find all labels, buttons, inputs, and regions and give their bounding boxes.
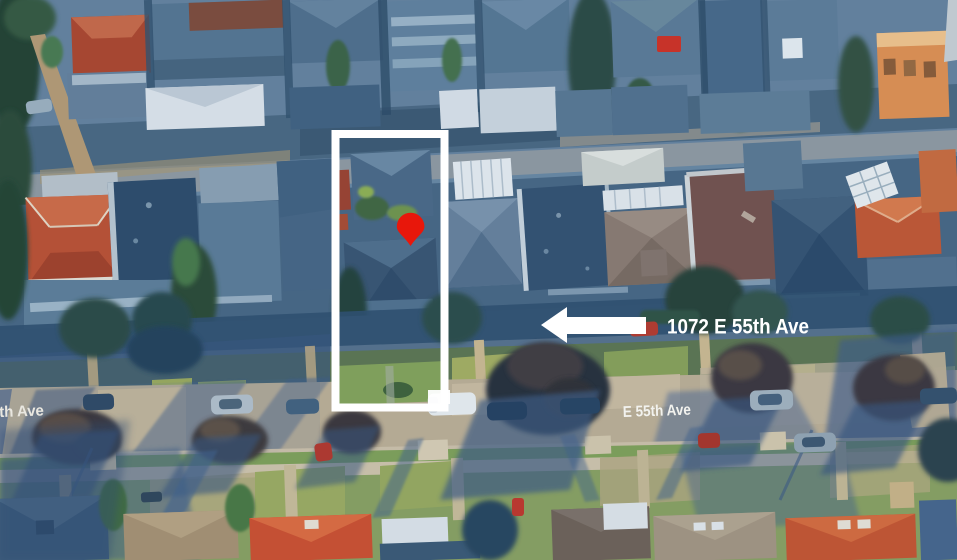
svg-text:E 55th Ave: E 55th Ave (623, 402, 692, 421)
svg-text:1072 E 55th Ave: 1072 E 55th Ave (667, 316, 809, 339)
svg-text:5th Ave: 5th Ave (0, 402, 44, 421)
